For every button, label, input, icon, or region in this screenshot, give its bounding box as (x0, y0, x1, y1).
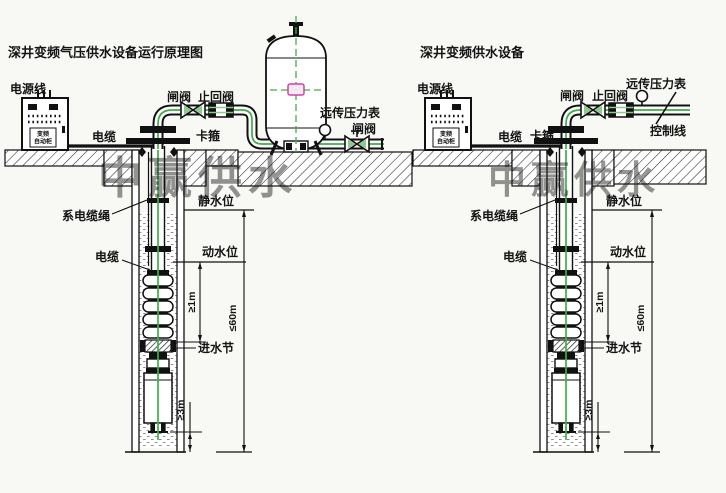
remote-gauge-label: 远传压力表 (626, 76, 687, 91)
gate-valve-label: 闸阀 (560, 88, 584, 103)
gate-valve-label: 闸阀 (167, 89, 191, 104)
left-cabinet (22, 90, 68, 150)
outlet-gate-valve-symbol (345, 136, 369, 152)
watermark-right: 中赢供水 (488, 159, 660, 202)
right-cabinet (425, 90, 471, 150)
outlet-valve-label: 闸阀 (352, 121, 376, 136)
wellhead-flange (126, 138, 190, 144)
cable-label: 电缆 (498, 129, 522, 144)
gate-valve (181, 102, 205, 118)
right-diagram: 深井变频供水设备 电源线 电缆 闸阀 止回阀 卡 (413, 45, 706, 452)
control-line-label: 控制线 (650, 123, 686, 138)
right-title: 深井变频供水设备 (420, 45, 525, 60)
power-line-label: 电源线 (417, 81, 453, 96)
left-diagram: 深井变频气压供水设备运行原理图 (5, 16, 412, 452)
gate-valve (581, 102, 605, 118)
check-valve-label: 止回阀 (592, 88, 628, 103)
remote-gauge-label: 远传压力表 (320, 105, 381, 120)
clamp-label: 卡箍 (530, 128, 554, 143)
remote-pressure-gauge (637, 91, 648, 107)
watermark-left: 中赢供水 (98, 154, 298, 203)
power-line-label: 电源线 (10, 81, 46, 96)
tank-level-gauge (288, 84, 304, 95)
pipe-clamp (140, 126, 176, 133)
check-valve-label: 止回阀 (198, 89, 234, 104)
check-valve (209, 103, 233, 117)
pressure-tank (266, 16, 326, 155)
left-title: 深井变频气压供水设备运行原理图 (8, 45, 203, 60)
diagram-canvas: 变频 自动柜 (0, 0, 726, 493)
schematic-page: 变频 自动柜 (0, 0, 726, 493)
check-valve (609, 103, 633, 117)
cable-label: 电缆 (92, 129, 116, 144)
clamp-label: 卡箍 (196, 128, 220, 143)
